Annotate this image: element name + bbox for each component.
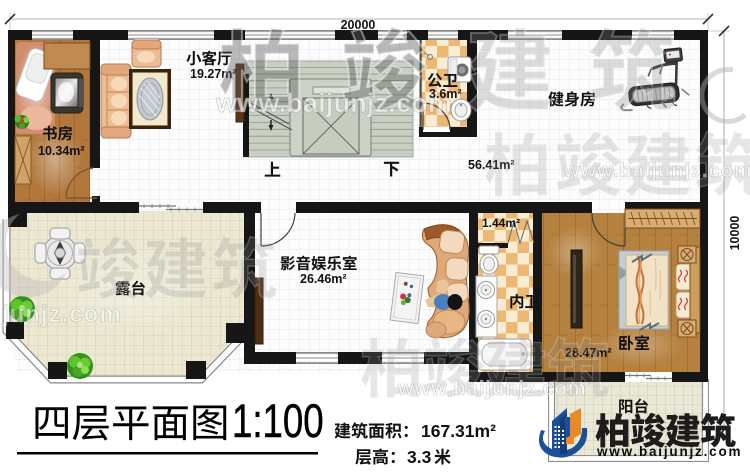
svg-text:26.46m²: 26.46m²: [300, 272, 347, 286]
svg-text:www.baijunjz.com: www.baijunjz.com: [215, 88, 452, 118]
svg-text:1.44m²: 1.44m²: [482, 216, 520, 230]
svg-text:167.31m²: 167.31m²: [421, 421, 496, 441]
svg-text:3.3: 3.3: [407, 447, 432, 467]
svg-text:10.34m²: 10.34m²: [38, 144, 85, 158]
svg-text:10000: 10000: [728, 216, 742, 251]
svg-text:www.baijunjz.com: www.baijunjz.com: [397, 378, 587, 400]
svg-text:junjz.com: junjz.com: [1, 301, 122, 328]
svg-text:www.baijunjz.com: www.baijunjz.com: [596, 444, 742, 459]
svg-text:1:100: 1:100: [232, 395, 324, 447]
svg-text:www.baijunjz.com: www.baijunjz.com: [563, 160, 750, 182]
